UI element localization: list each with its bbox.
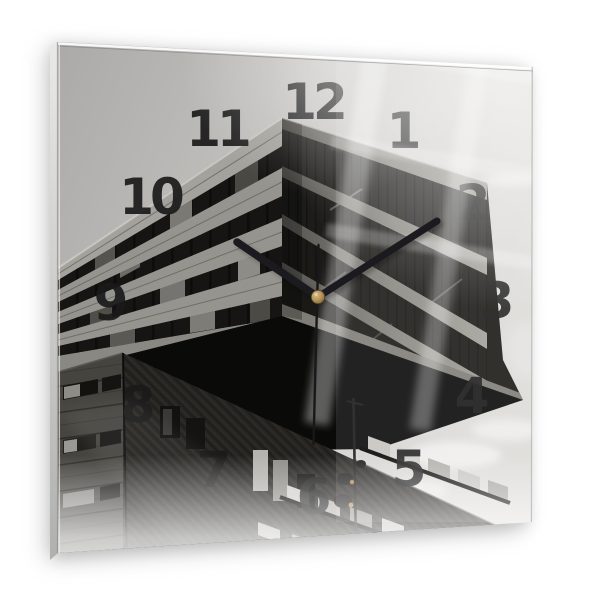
numeral-10: 10	[119, 168, 183, 226]
product-photo-glass-wall-clock: 12 1 2 3 4 5 6 7 8 9 10 11	[0, 0, 600, 600]
center-pin	[311, 290, 325, 304]
numeral-9: 9	[94, 274, 129, 332]
clock-photo-canvas: 12 1 2 3 4 5 6 7 8 9 10 11	[0, 0, 600, 600]
clock-face: 12 1 2 3 4 5 6 7 8 9 10 11	[45, 0, 600, 600]
glass-side-edge	[50, 42, 58, 560]
